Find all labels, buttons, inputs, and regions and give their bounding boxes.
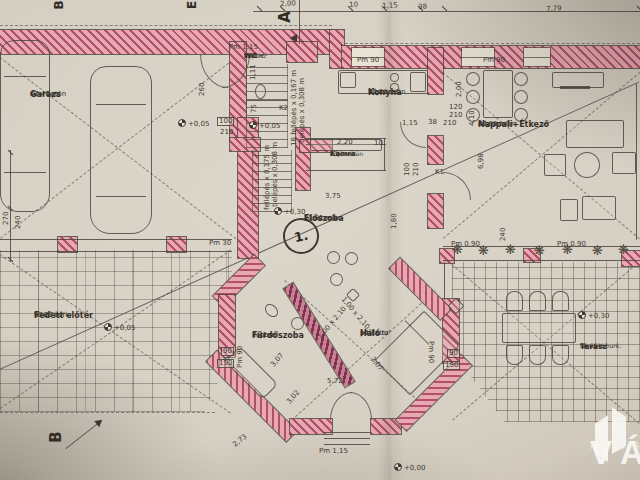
dimension-label: Pm 90 bbox=[483, 57, 505, 64]
dimension-label: 2,00 bbox=[280, 0, 296, 8]
dimension-label: 210 bbox=[443, 120, 456, 127]
floorplan-photo: 1. ❋ ❋ ❋ ❋ ❋ ❋ ❋ A B E B Garázs sim. bet… bbox=[0, 0, 640, 480]
dimension-label: 2,00 bbox=[456, 81, 463, 97]
dimension-label: +0,05 bbox=[249, 121, 280, 130]
dimension-label: Pm 30 bbox=[209, 240, 231, 247]
paper-crease bbox=[378, 0, 404, 480]
dimension-label: belépés x 0,308 m bbox=[299, 78, 306, 143]
dimension-label: 210 bbox=[449, 112, 462, 119]
dimension-label: fellépés x 0,175 m bbox=[264, 145, 271, 210]
dimension-label: 7,79 bbox=[546, 5, 562, 13]
dimension-label: 3,02 bbox=[286, 389, 301, 405]
dimension-label: Pm 0,90 bbox=[451, 241, 480, 248]
dimension-label: 6,98 bbox=[478, 153, 485, 169]
dimension-label: 270 bbox=[3, 212, 10, 225]
dimension-label: K1 bbox=[435, 169, 444, 176]
dimension-label: Pm 1,15 bbox=[319, 448, 348, 455]
dimension-label: 90 bbox=[221, 347, 234, 356]
dimension-label: 240 bbox=[15, 216, 22, 229]
dimension-label: 1,11 bbox=[250, 64, 257, 80]
dimension-label: Pm 90 bbox=[237, 346, 244, 368]
dimension-label: Pm 90 bbox=[357, 57, 379, 64]
dimension-label: 210 bbox=[413, 163, 420, 176]
dimension-label: 3,07 bbox=[270, 352, 285, 368]
dimension-label: 240 bbox=[500, 228, 507, 241]
dimension-label: 2,20 bbox=[337, 139, 353, 146]
dimension-label: Pm 0,90 bbox=[557, 241, 586, 248]
dimension-label: 210 bbox=[220, 129, 233, 136]
dimension-label: 100 bbox=[404, 163, 411, 176]
dimension-label: 5,72 bbox=[327, 378, 343, 385]
dimension-label: 3,75 bbox=[325, 193, 341, 200]
dimension-label: +0,05 bbox=[104, 323, 135, 332]
dimension-label: 90 bbox=[447, 349, 460, 358]
dimension-label: K2 bbox=[279, 105, 288, 112]
dimension-label: +0,30 bbox=[274, 207, 305, 216]
dimension-label: +0,05 bbox=[178, 119, 209, 128]
dimension-label: Pm 90 bbox=[427, 341, 434, 363]
dimension-label: 150 bbox=[217, 359, 234, 368]
annotation-layer: 2,00101,15387,79Pm 1,15Pm 90Pm 90K2K1260… bbox=[0, 0, 640, 480]
dimension-label: 260 bbox=[199, 83, 206, 96]
dimension-label: 10 bbox=[349, 2, 358, 9]
dimension-label: 120 bbox=[449, 104, 462, 111]
dimension-label: 4,10 bbox=[469, 110, 476, 126]
dimension-label: 100 bbox=[217, 117, 234, 126]
logo-subtitle: INGATLANIRODA bbox=[590, 440, 640, 451]
dimension-label: 1,15 bbox=[402, 120, 418, 127]
dimension-label: 18 fellépés x 0,167 m bbox=[291, 70, 298, 146]
dimension-label: 2,73 bbox=[232, 433, 249, 448]
agency-watermark: VÁROSI INGATLANIRODA bbox=[590, 404, 630, 468]
dimension-label: +0,30 bbox=[578, 311, 609, 320]
dimension-label: 1,00 x 2,10 bbox=[317, 306, 348, 341]
dimension-label: 75 bbox=[251, 104, 258, 113]
dimension-label: 150 bbox=[443, 361, 460, 370]
dimension-label: belépés x 0,308 m bbox=[272, 142, 279, 207]
dimension-label: 38 bbox=[428, 119, 437, 126]
dimension-label: Pm 1,15 bbox=[229, 44, 258, 51]
dimension-label: 38 bbox=[418, 4, 427, 11]
